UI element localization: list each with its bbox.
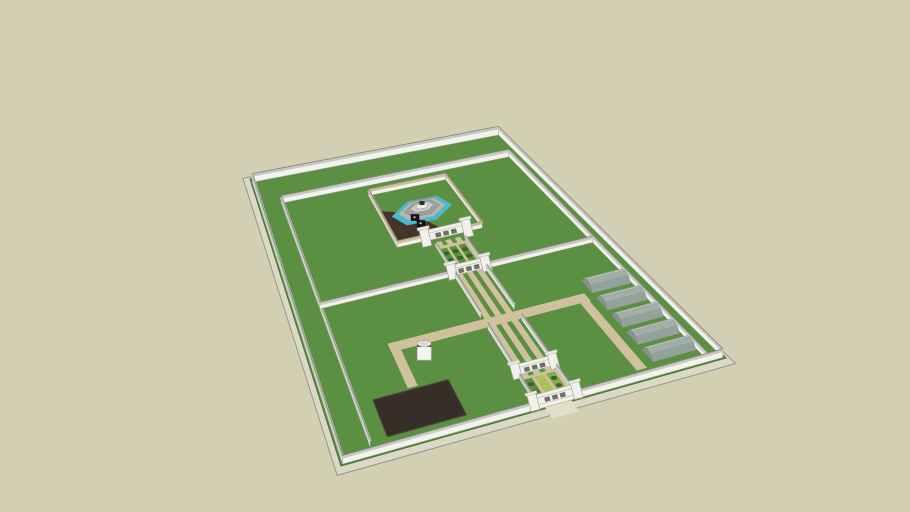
lower-bed-1-shrub-1: [528, 382, 534, 386]
screenshot-root: [0, 0, 910, 512]
upper-bed-3-shrub-1: [462, 247, 468, 251]
lower-bed-3-shrub-1: [551, 376, 557, 380]
octagonal-fountain-box-mark-2: [420, 222, 422, 224]
upper-bed-3-shrub-2: [466, 254, 472, 258]
water-tank-lid-inner: [420, 342, 429, 346]
octagonal-fountain-center-finial: [420, 201, 425, 205]
upper-bed-2-shrub-2: [457, 256, 463, 260]
lower-bed-3-shrub-2: [556, 383, 562, 387]
octagonal-fountain-box-mark-1: [414, 216, 416, 218]
upper-bed-2-shrub-1: [452, 249, 458, 253]
model-viewport[interactable]: [0, 0, 910, 512]
water-tank-body: [417, 345, 431, 360]
